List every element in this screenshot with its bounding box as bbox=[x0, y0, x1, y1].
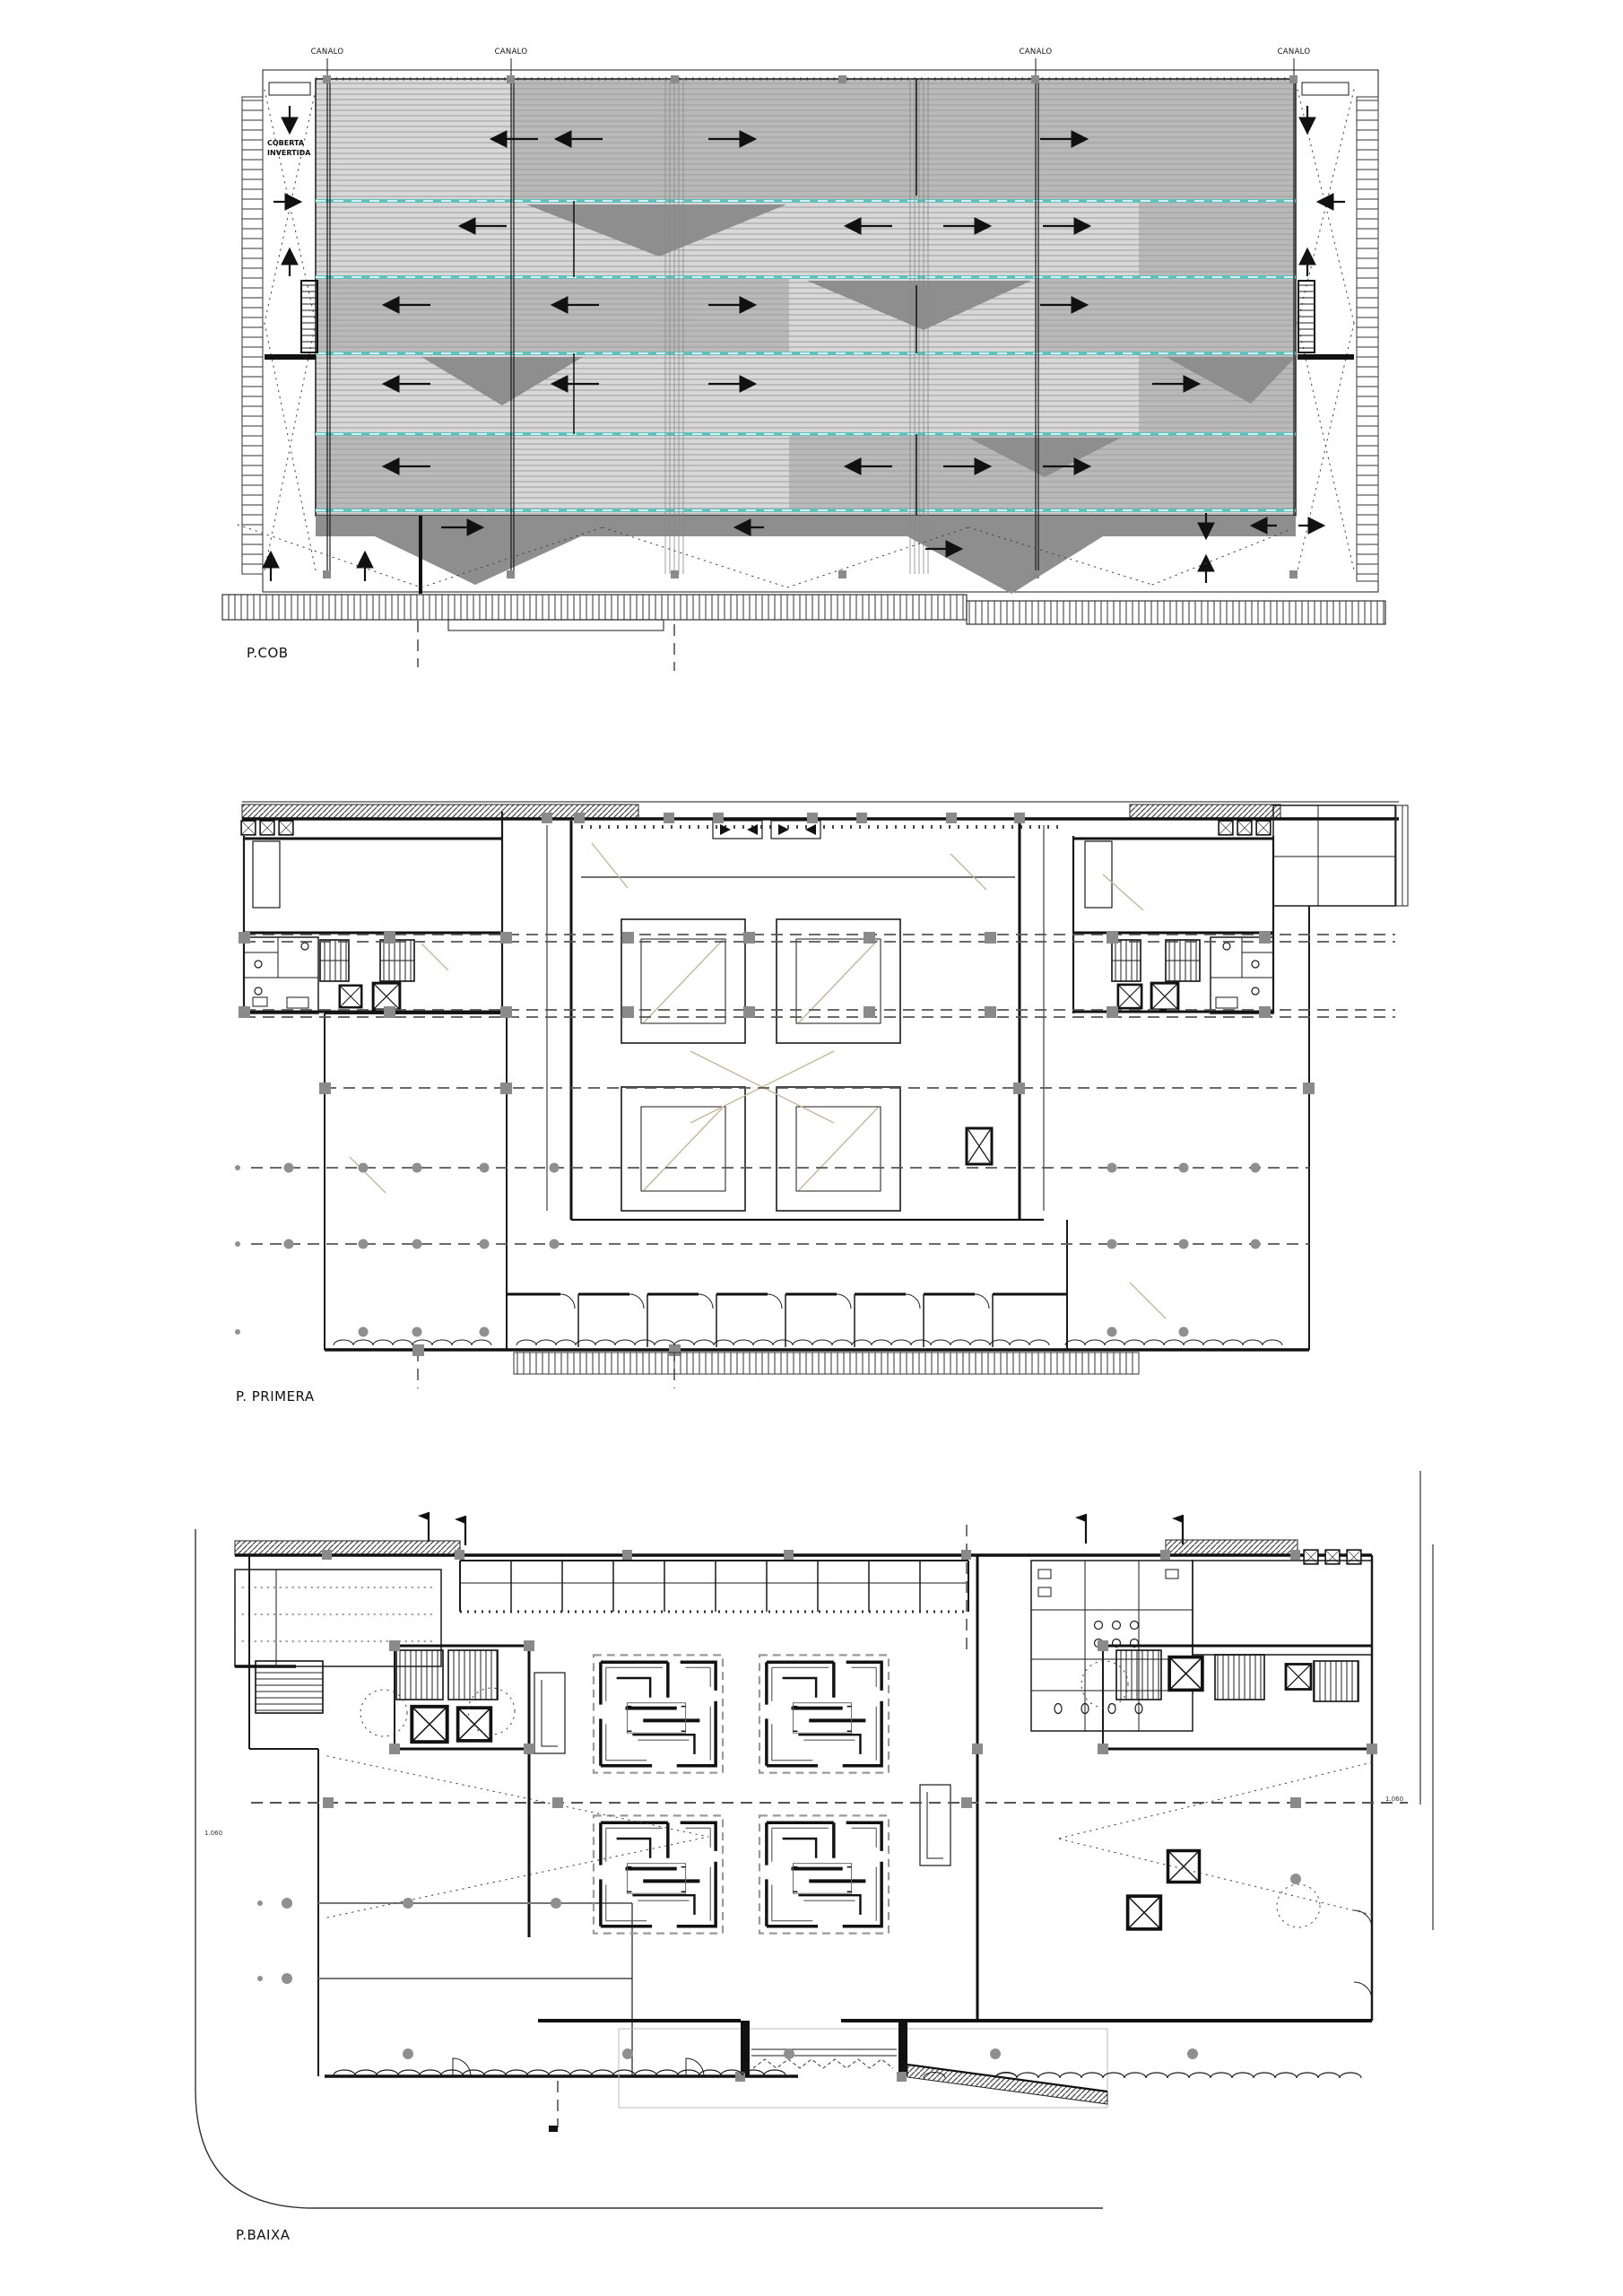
roof-vent-box bbox=[1219, 821, 1233, 835]
first-plan-title: P. PRIMERA bbox=[236, 1388, 315, 1405]
roof-corrugated-field bbox=[316, 79, 1296, 516]
roof-ladder-table-left bbox=[301, 281, 317, 352]
elevator bbox=[1151, 983, 1178, 1010]
roof-note: COBERTA INVERTIDA bbox=[267, 139, 311, 157]
stair bbox=[256, 1661, 323, 1713]
roof-vent-box bbox=[279, 821, 293, 835]
canal-label-1: CANALO bbox=[311, 48, 344, 57]
elevator bbox=[340, 986, 362, 1008]
elevator bbox=[1286, 1665, 1311, 1690]
ground-room-topright bbox=[1193, 1561, 1372, 1655]
elevator bbox=[1169, 1657, 1202, 1691]
canal-label-2: CANALO bbox=[495, 48, 528, 57]
elevator bbox=[1128, 1896, 1161, 1929]
ground-floor-plan: 1.060 1.060 bbox=[195, 1471, 1433, 2243]
drawing-sheet: CANALO CANALO CANALO CANALO bbox=[0, 0, 1623, 2296]
first-bottom-rooms bbox=[507, 1294, 1067, 1347]
roof-plan: CANALO CANALO CANALO CANALO bbox=[222, 48, 1385, 671]
roof-axis-stubs bbox=[418, 621, 674, 671]
roof-note-line2: INVERTIDA bbox=[267, 149, 311, 157]
flag-icon bbox=[418, 1512, 429, 1542]
elevator bbox=[1118, 985, 1141, 1008]
roof-vent-box bbox=[241, 821, 256, 835]
first-columns bbox=[235, 813, 1315, 1356]
ground-columns bbox=[257, 1550, 1377, 2059]
door-swing-circles bbox=[360, 1661, 1320, 1927]
first-grid-axes bbox=[244, 935, 1395, 1388]
roof-walkway-bottom-left bbox=[222, 595, 967, 620]
elevator bbox=[412, 1707, 447, 1742]
ground-curtain-scallops bbox=[334, 2070, 785, 2075]
ground-stalls-band bbox=[460, 1561, 968, 1612]
first-floor-plan: P. PRIMERA bbox=[235, 802, 1408, 1405]
exhibition-booths bbox=[534, 1655, 950, 1933]
first-core-left bbox=[244, 937, 414, 1013]
roof-vent-box bbox=[1237, 821, 1252, 835]
first-core-right bbox=[1112, 937, 1273, 1013]
booth bbox=[759, 1655, 889, 1772]
roof-walkway-bottom-right bbox=[967, 601, 1385, 624]
ground-core-left bbox=[256, 1650, 498, 1742]
roof-vent-box bbox=[1304, 1550, 1318, 1564]
entrance-doors-zigzag bbox=[753, 2059, 893, 2068]
elevator bbox=[1168, 1851, 1200, 1883]
roof-canopy-step bbox=[448, 620, 664, 631]
roof-walkway-left bbox=[242, 97, 263, 574]
first-curtain-scallops bbox=[334, 1340, 1282, 1345]
level-marker-left: 1.060 bbox=[204, 1830, 222, 1837]
level-marker-right: 1.060 bbox=[1385, 1796, 1403, 1803]
banner-flags bbox=[418, 1512, 1183, 1545]
booth bbox=[759, 1815, 889, 1933]
canal-label-3: CANALO bbox=[1020, 48, 1053, 57]
roof-vent-box bbox=[260, 821, 274, 835]
entrance-ramp bbox=[907, 2065, 1107, 2104]
ground-walls bbox=[249, 1555, 1372, 2076]
first-entry-walkway bbox=[514, 1352, 1139, 1374]
first-top-edge bbox=[241, 802, 1399, 839]
first-vestibule-doors bbox=[713, 821, 820, 839]
ground-right-facade bbox=[995, 2073, 1361, 2078]
stair bbox=[1116, 1650, 1161, 1700]
stair bbox=[396, 1650, 443, 1700]
entrance bbox=[538, 2021, 1372, 2108]
roof-vent-box bbox=[1347, 1550, 1361, 1564]
first-annex bbox=[1273, 805, 1395, 906]
flag-icon bbox=[1075, 1514, 1086, 1544]
ground-plan-title: P.BAIXA bbox=[236, 2227, 291, 2243]
plans-sheet-svg: CANALO CANALO CANALO CANALO bbox=[0, 0, 1623, 2296]
ground-core-right bbox=[1116, 1650, 1358, 1929]
stair bbox=[1314, 1661, 1358, 1701]
stair bbox=[448, 1650, 498, 1700]
roof-note-line1: COBERTA bbox=[267, 139, 305, 147]
roof-ladder-table-right bbox=[1298, 281, 1315, 352]
stair bbox=[1215, 1655, 1264, 1700]
roof-vent-box bbox=[1325, 1550, 1340, 1564]
roof-canal-labels: CANALO CANALO CANALO CANALO bbox=[311, 48, 1311, 79]
booth bbox=[594, 1655, 723, 1772]
roof-plan-title: P.COB bbox=[247, 645, 289, 661]
first-walls bbox=[244, 805, 1408, 1350]
booth bbox=[594, 1815, 723, 1933]
roof-walkway-right bbox=[1357, 97, 1378, 581]
canal-label-4: CANALO bbox=[1278, 48, 1311, 57]
elevator bbox=[458, 1708, 491, 1741]
elevator bbox=[373, 983, 400, 1010]
roof-vent-box bbox=[1256, 821, 1271, 835]
